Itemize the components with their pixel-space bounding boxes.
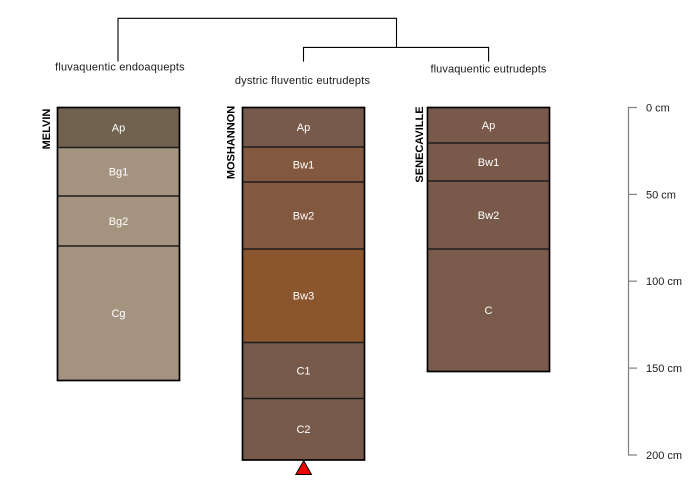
svg-text:Bg1: Bg1	[109, 167, 129, 179]
svg-text:fluvaquentic endoaquepts: fluvaquentic endoaquepts	[55, 62, 185, 74]
svg-text:C2: C2	[296, 424, 310, 436]
svg-text:SENECAVILLE: SENECAVILLE	[414, 106, 426, 182]
svg-text:Bg2: Bg2	[109, 216, 129, 228]
svg-text:Bw3: Bw3	[293, 291, 314, 303]
svg-text:dystric fluventic eutrudepts: dystric fluventic eutrudepts	[235, 75, 371, 87]
svg-text:fluvaquentic eutrudepts: fluvaquentic eutrudepts	[430, 64, 546, 76]
svg-text:Ap: Ap	[112, 123, 125, 135]
svg-text:Bw2: Bw2	[293, 211, 314, 223]
svg-text:Cg: Cg	[111, 308, 125, 320]
svg-text:100 cm: 100 cm	[646, 276, 682, 288]
svg-text:C1: C1	[296, 366, 310, 378]
svg-text:200 cm: 200 cm	[646, 450, 682, 462]
svg-text:MOSHANNON: MOSHANNON	[226, 106, 238, 179]
svg-text:C: C	[485, 305, 493, 317]
svg-text:Bw2: Bw2	[478, 210, 499, 222]
svg-text:MELVIN: MELVIN	[41, 109, 53, 150]
svg-text:0 cm: 0 cm	[646, 103, 670, 115]
svg-text:Bw1: Bw1	[478, 157, 499, 169]
svg-text:Bw1: Bw1	[293, 160, 314, 172]
svg-text:Ap: Ap	[297, 122, 310, 134]
svg-text:150 cm: 150 cm	[646, 363, 682, 375]
svg-text:Ap: Ap	[482, 120, 495, 132]
svg-text:50 cm: 50 cm	[646, 189, 676, 201]
